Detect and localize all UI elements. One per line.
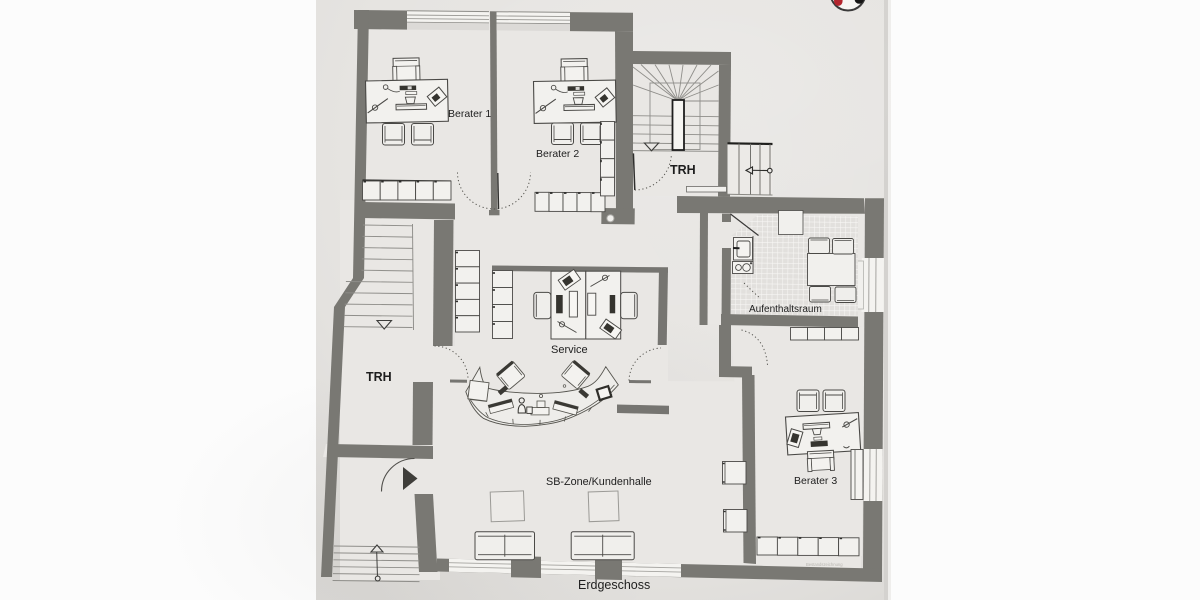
- svg-text:SB-Zone/Kundenhalle: SB-Zone/Kundenhalle: [546, 476, 652, 488]
- svg-text:Berater 1: Berater 1: [448, 108, 491, 120]
- svg-text:Berater 3: Berater 3: [794, 475, 837, 487]
- svg-text:Bestandszeichnung: Bestandszeichnung: [806, 562, 843, 567]
- svg-text:Berater 2: Berater 2: [536, 148, 579, 160]
- svg-text:Erdgeschoss: Erdgeschoss: [578, 578, 650, 592]
- svg-text:Service: Service: [551, 344, 588, 356]
- svg-text:Aufenthaltsraum: Aufenthaltsraum: [749, 304, 822, 315]
- svg-text:TRH: TRH: [366, 370, 392, 384]
- svg-text:TRH: TRH: [670, 163, 696, 177]
